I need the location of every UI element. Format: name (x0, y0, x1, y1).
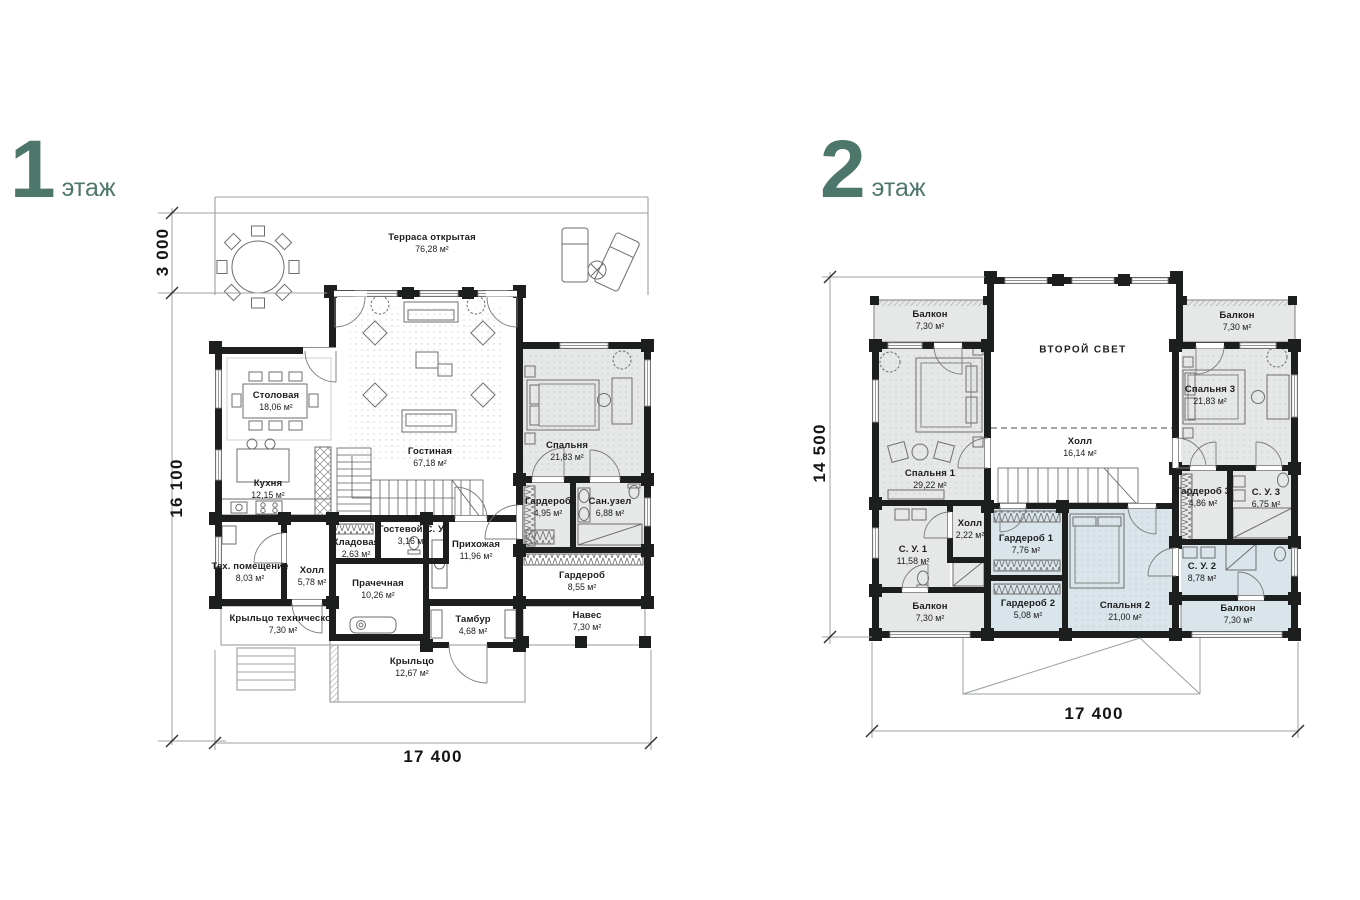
room-label-wardrobe1: Гардероб 17,76 м² (999, 533, 1053, 557)
room-label-terrace: Терраса открытая76,28 м² (388, 232, 476, 256)
room-label-wardrobe-f1: Гардероб4,95 м² (525, 496, 571, 520)
room-label-balcony-br: Балкон7,30 м² (1220, 603, 1255, 627)
room-label-living: Гостиная67,18 м² (408, 446, 452, 470)
room-label-porch: Крыльцо12,67 м² (390, 656, 434, 680)
dim-terrace-depth: 3 000 (153, 228, 173, 277)
room-label-bathroom-f1: Сан.узел6,88 м² (589, 496, 632, 520)
floor2-title: 2 этаж (820, 139, 926, 201)
room-label-hall-f1: Холл5,78 м² (298, 565, 327, 589)
room-label-tech: Тех. помещение8,03 м² (211, 561, 288, 585)
room-label-pantry: Кладовая2,63 м² (333, 537, 380, 561)
room-label-balcony-tl: Балкон7,30 м² (912, 309, 947, 333)
room-label-dining: Столовая18,06 м² (253, 390, 299, 414)
floor2-title-number: 2 (820, 139, 864, 201)
room-label-balcony-bl: Балкон7,30 м² (912, 601, 947, 625)
roof-outline (963, 638, 1200, 694)
floor2-title-word: этаж (872, 175, 926, 201)
room-label-wc2: С. У. 28,78 м² (1188, 561, 1217, 585)
room-label-hall-small: Холл2,22 м² (956, 518, 985, 542)
dim-floor2-width: 17 400 (1064, 704, 1123, 724)
floor1-title: 1 этаж (10, 139, 116, 201)
floor2-stairs (998, 468, 1138, 503)
room-label-bedroom2: Спальня 221,00 м² (1100, 600, 1150, 624)
room-label-laundry: Прачечная10,26 м² (352, 578, 404, 602)
dim-floor1-width: 17 400 (403, 747, 462, 767)
room-label-hall-f2: Холл16,14 м² (1063, 436, 1096, 460)
room-label-kitchen: Кухня12,15 м² (251, 478, 284, 502)
room-label-bedroom-f1: Спальня21,83 м² (546, 440, 588, 464)
room-label-vestibule: Тамбур4,68 м² (455, 614, 490, 638)
room-label-wardrobe2-f2: Гардероб 25,08 м² (1001, 598, 1055, 622)
room-label-tech-porch: Крыльцо техническое7,30 м² (229, 613, 336, 637)
room-label-balcony-tr: Балкон7,30 м² (1219, 310, 1254, 334)
dim-floor1-depth: 16 100 (167, 458, 187, 517)
floorplan-page: 1 этаж 2 этаж 3 000 16 100 17 400 14 500… (0, 0, 1360, 900)
room-label-wardrobe3: Гардероб 34,86 м² (1176, 486, 1230, 510)
room-label-bedroom3: Спальня 321,83 м² (1185, 384, 1235, 408)
room-label-second-light: ВТОРОЙ СВЕТ (1039, 344, 1126, 357)
room-label-bedroom1: Спальня 129,22 м² (905, 468, 955, 492)
room-label-guest-wc: Гостевой С. У.3,16 м² (378, 524, 445, 548)
floor1-title-number: 1 (10, 139, 54, 201)
room-label-canopy: Навес7,30 м² (572, 610, 601, 634)
floor1-title-word: этаж (62, 175, 116, 201)
floorplan-drawing (0, 0, 1360, 900)
dim-floor2-depth: 14 500 (810, 423, 830, 482)
room-label-entry: Прихожая11,96 м² (452, 539, 500, 563)
room-label-wardrobe2-f1: Гардероб8,55 м² (559, 570, 605, 594)
room-label-wc3: С. У. 36,75 м² (1252, 487, 1281, 511)
room-label-wc1: С. У. 111,58 м² (897, 544, 930, 568)
